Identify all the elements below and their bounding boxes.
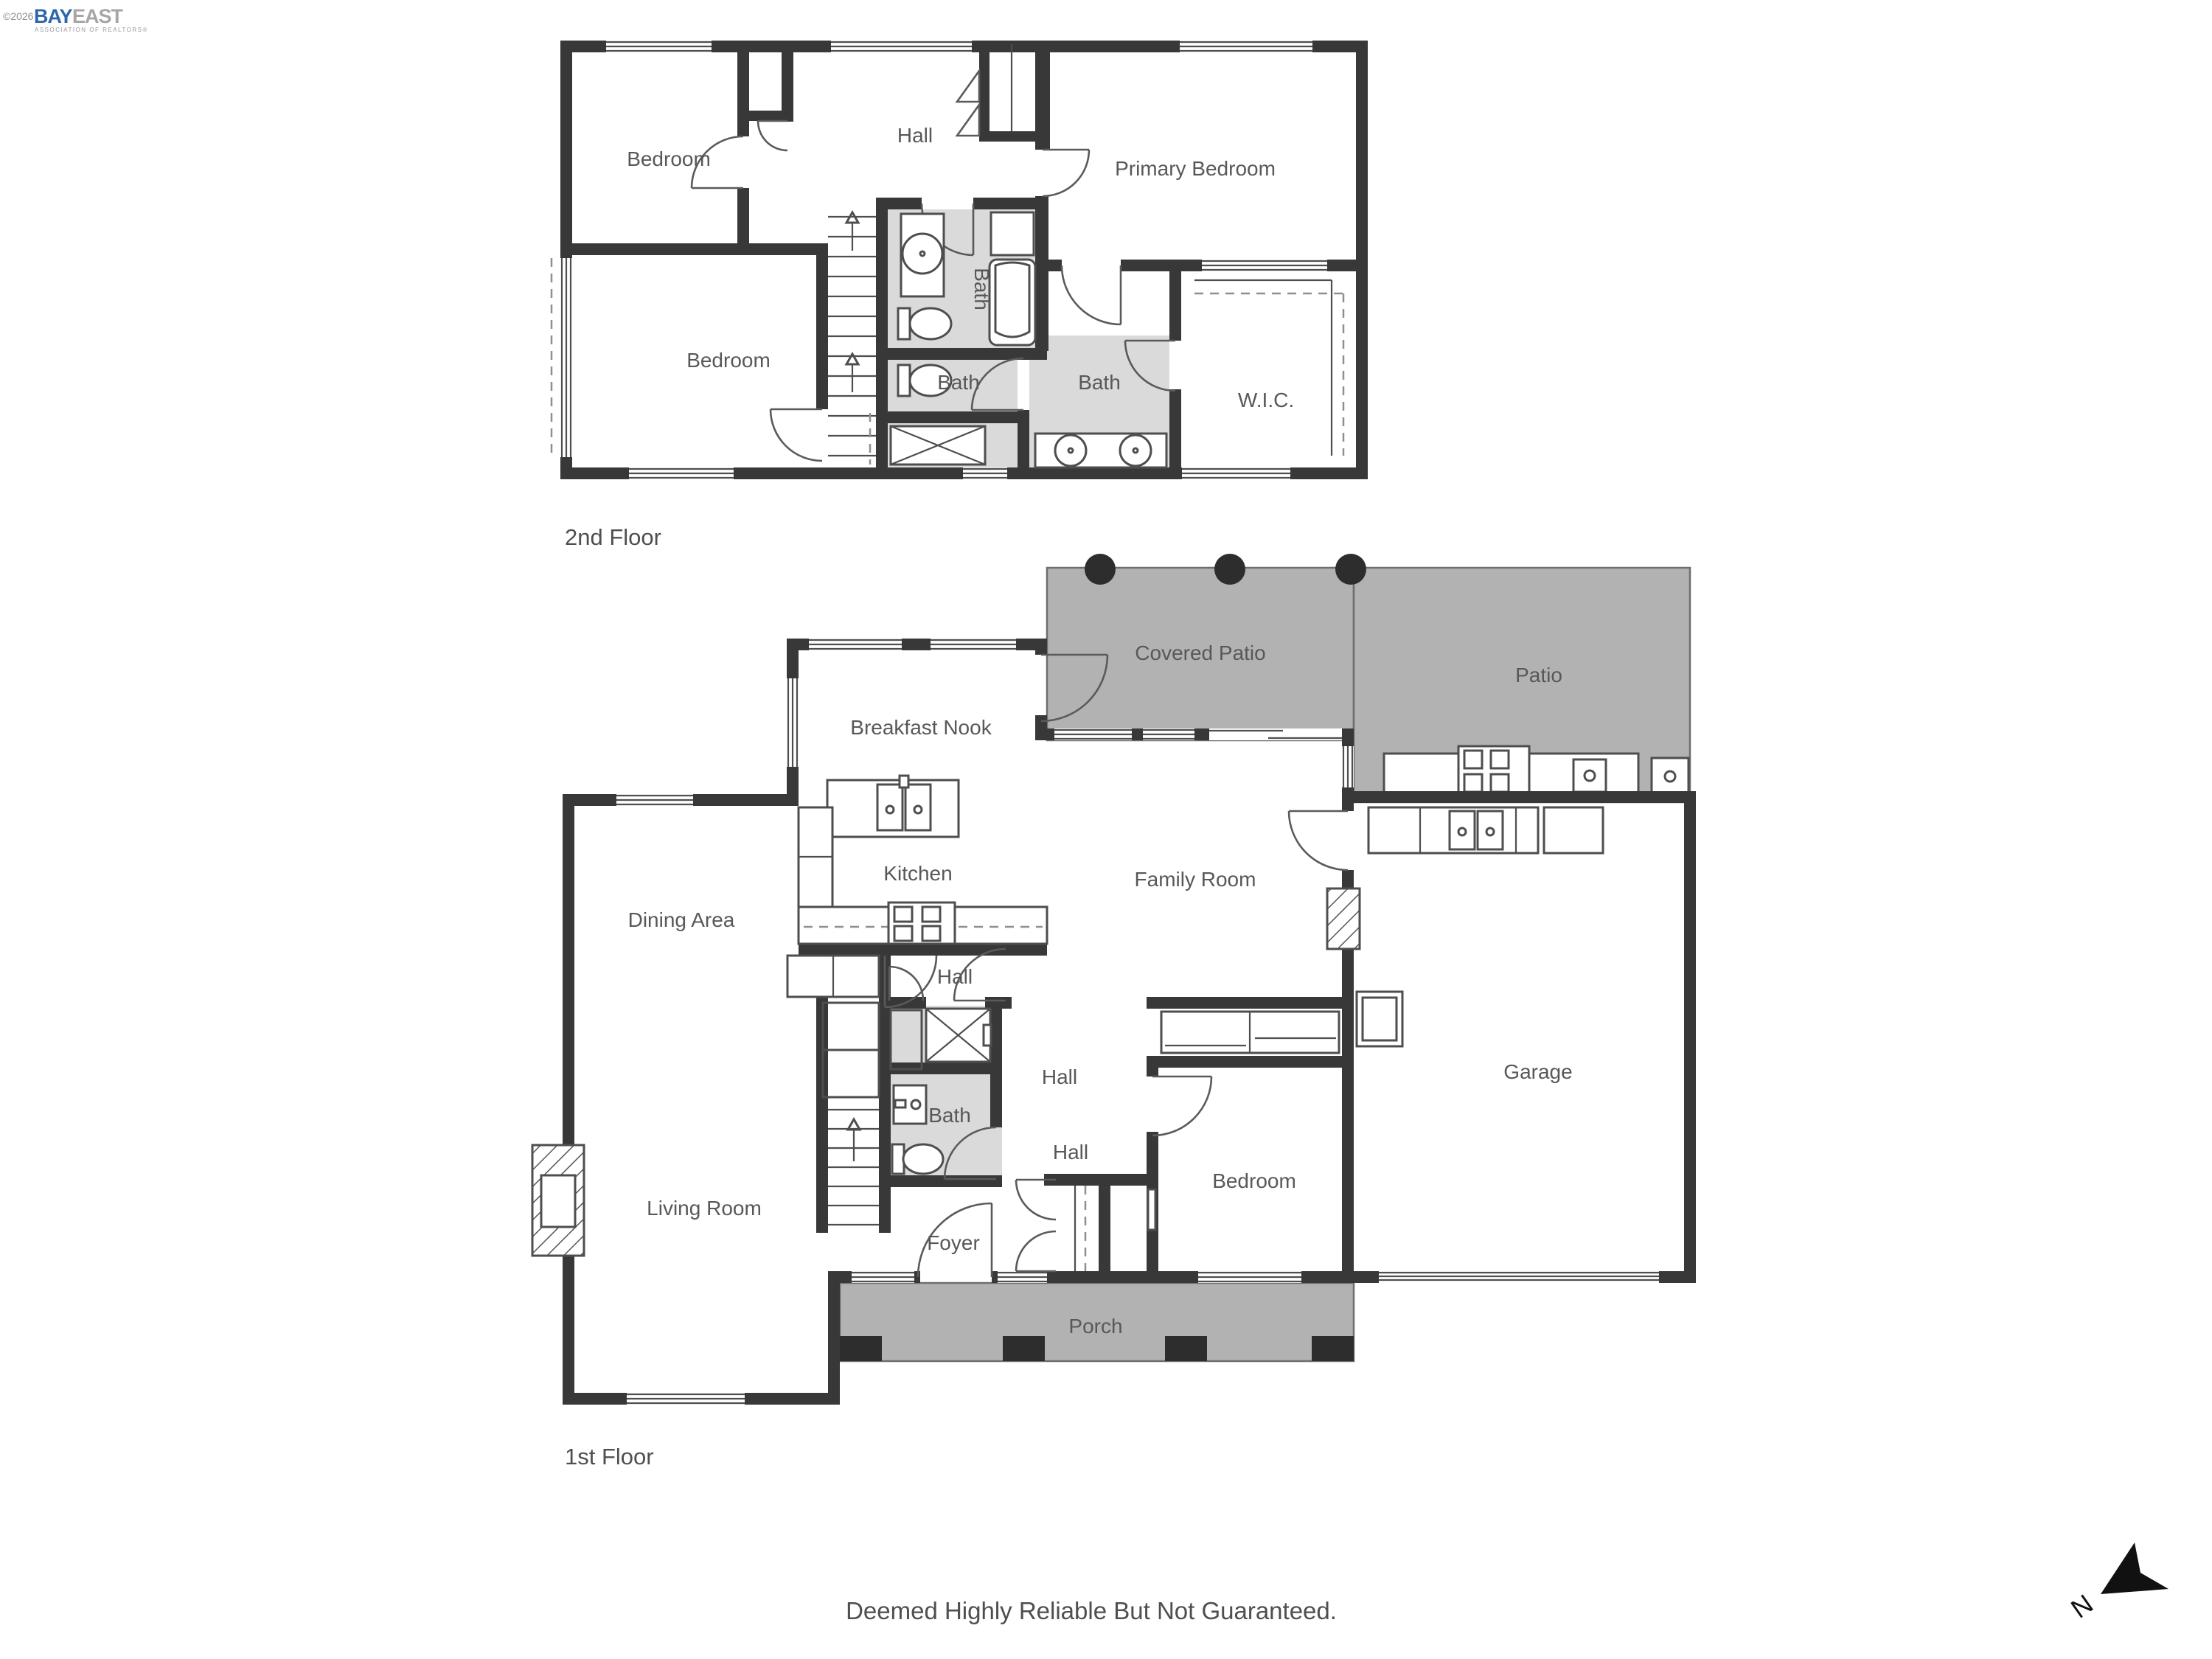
second-floor-caption: 2nd Floor [565, 524, 661, 550]
door-arc [1043, 150, 1089, 196]
stair-up-arrow-icon [846, 354, 858, 392]
window [1182, 467, 1290, 479]
window [629, 467, 734, 479]
porch-post [1165, 1336, 1207, 1361]
toilet-icon [892, 1144, 943, 1174]
window [1342, 746, 1354, 787]
kitchen-counter [799, 902, 1047, 944]
window [1054, 728, 1132, 740]
window [552, 258, 572, 457]
room-label-primary-bedroom: Primary Bedroom [1115, 157, 1276, 180]
window [627, 1393, 745, 1405]
window [931, 639, 1016, 650]
window [1202, 260, 1327, 271]
window [831, 41, 972, 52]
room-label-bath-center: Bath [970, 268, 993, 310]
room-label-wic: W.I.C. [1238, 389, 1294, 411]
room-label-bedroom-bottom: Bedroom [686, 349, 771, 372]
patio-post [1335, 554, 1366, 585]
logo-tagline: ASSOCIATION OF REALTORS® [35, 27, 148, 33]
logo-east: EAST [72, 5, 124, 27]
room-label-hall-lower: Hall [1053, 1141, 1088, 1164]
logo-bay: BAY [34, 5, 73, 27]
window [809, 639, 902, 650]
room-label-bath-primary: Bath [1078, 371, 1121, 394]
room-label-bedroom-top: Bedroom [627, 147, 711, 170]
room-label-garage: Garage [1503, 1060, 1572, 1083]
room-label-family-room: Family Room [1135, 868, 1256, 891]
bathroom-vanity [901, 214, 944, 296]
room-label-living-room: Living Room [647, 1197, 762, 1220]
double-sink-vanity [1035, 434, 1166, 467]
porch-post [1003, 1336, 1045, 1361]
patio-post [1214, 554, 1245, 585]
door-leaf [1148, 1189, 1155, 1230]
shower-icon [926, 1009, 991, 1062]
staircase-upper [828, 212, 876, 465]
door-arc [1016, 1231, 1056, 1271]
window [616, 794, 693, 806]
pantry-shelf [823, 1050, 879, 1097]
bayeast-logo: ©2026 BAY EAST ASSOCIATION OF REALTORS® [3, 5, 148, 33]
patio-post [1085, 554, 1116, 585]
staircase-lower [787, 956, 879, 1225]
north-letter: N [2065, 1588, 2098, 1624]
kitchen-wall-cabinet [799, 807, 832, 907]
water-heater [1357, 992, 1402, 1046]
room-label-hall-upper: Hall [937, 965, 973, 988]
room-label-bath-lower: Bath [937, 371, 980, 394]
pantry-shelf [823, 1003, 879, 1050]
garage-door [1379, 1271, 1659, 1283]
bifold-door-icon [957, 71, 979, 136]
bathtub-icon [990, 260, 1035, 345]
fireplace-icon [532, 1145, 584, 1256]
fireplace-icon [1327, 888, 1360, 949]
garage-cabinet [1544, 807, 1603, 853]
window [852, 1271, 914, 1283]
door-arc [1062, 265, 1121, 324]
first-floor-caption: 1st Floor [565, 1444, 654, 1470]
room-label-covered-patio: Covered Patio [1135, 641, 1265, 664]
window [606, 41, 712, 52]
second-floor-plan: Bedroom Hall Primary Bedroom Bath Bedroo… [552, 41, 1368, 550]
logo-copyright: ©2026 [3, 10, 34, 22]
room-label-patio: Patio [1515, 664, 1562, 686]
sliding-door [1209, 728, 1342, 740]
window [998, 1271, 1047, 1283]
bathroom-vanity [894, 1085, 926, 1124]
door-arc [771, 409, 822, 461]
closet-rod-lines [1194, 280, 1343, 456]
garage-counter [1368, 807, 1538, 853]
door-arc [1152, 1077, 1211, 1135]
stair-up-arrow-icon [846, 212, 858, 251]
door-arc [1289, 811, 1348, 870]
disclaimer-text: Deemed Highly Reliable But Not Guarantee… [846, 1597, 1337, 1624]
porch-post [840, 1336, 882, 1361]
door-arc [758, 121, 787, 150]
window [1180, 41, 1312, 52]
room-label-bedroom: Bedroom [1212, 1169, 1296, 1192]
shower-icon [891, 426, 985, 465]
window [787, 678, 799, 767]
first-floor-plan: Covered Patio Patio Breakfast Nook Kitch… [532, 554, 1696, 1470]
toilet-icon [898, 308, 951, 339]
door-arc [1016, 1180, 1056, 1220]
room-label-breakfast-nook: Breakfast Nook [850, 716, 992, 739]
room-label-porch: Porch [1068, 1315, 1122, 1338]
floor-plan-canvas: ©2026 BAY EAST ASSOCIATION OF REALTORS® [0, 0, 2212, 1659]
stair-up-arrow-icon [848, 1119, 860, 1161]
kitchen-island [827, 776, 959, 837]
north-arrow-icon [2101, 1543, 2168, 1594]
room-label-bath: Bath [928, 1104, 971, 1127]
kitchen-fixtures [799, 776, 1047, 944]
window [1198, 1271, 1301, 1283]
room-label-dining-area: Dining Area [628, 908, 735, 931]
north-arrow: N [2065, 1543, 2168, 1624]
floor-plan-page: ©2026 BAY EAST ASSOCIATION OF REALTORS® [0, 0, 2212, 1659]
room-label-foyer: Foyer [927, 1231, 980, 1254]
window [963, 467, 1007, 479]
room-label-hall-mid: Hall [1042, 1065, 1077, 1088]
window [1143, 728, 1194, 740]
porch-post [1312, 1336, 1354, 1361]
room-label-kitchen: Kitchen [883, 862, 952, 885]
room-label-hall: Hall [897, 124, 933, 147]
